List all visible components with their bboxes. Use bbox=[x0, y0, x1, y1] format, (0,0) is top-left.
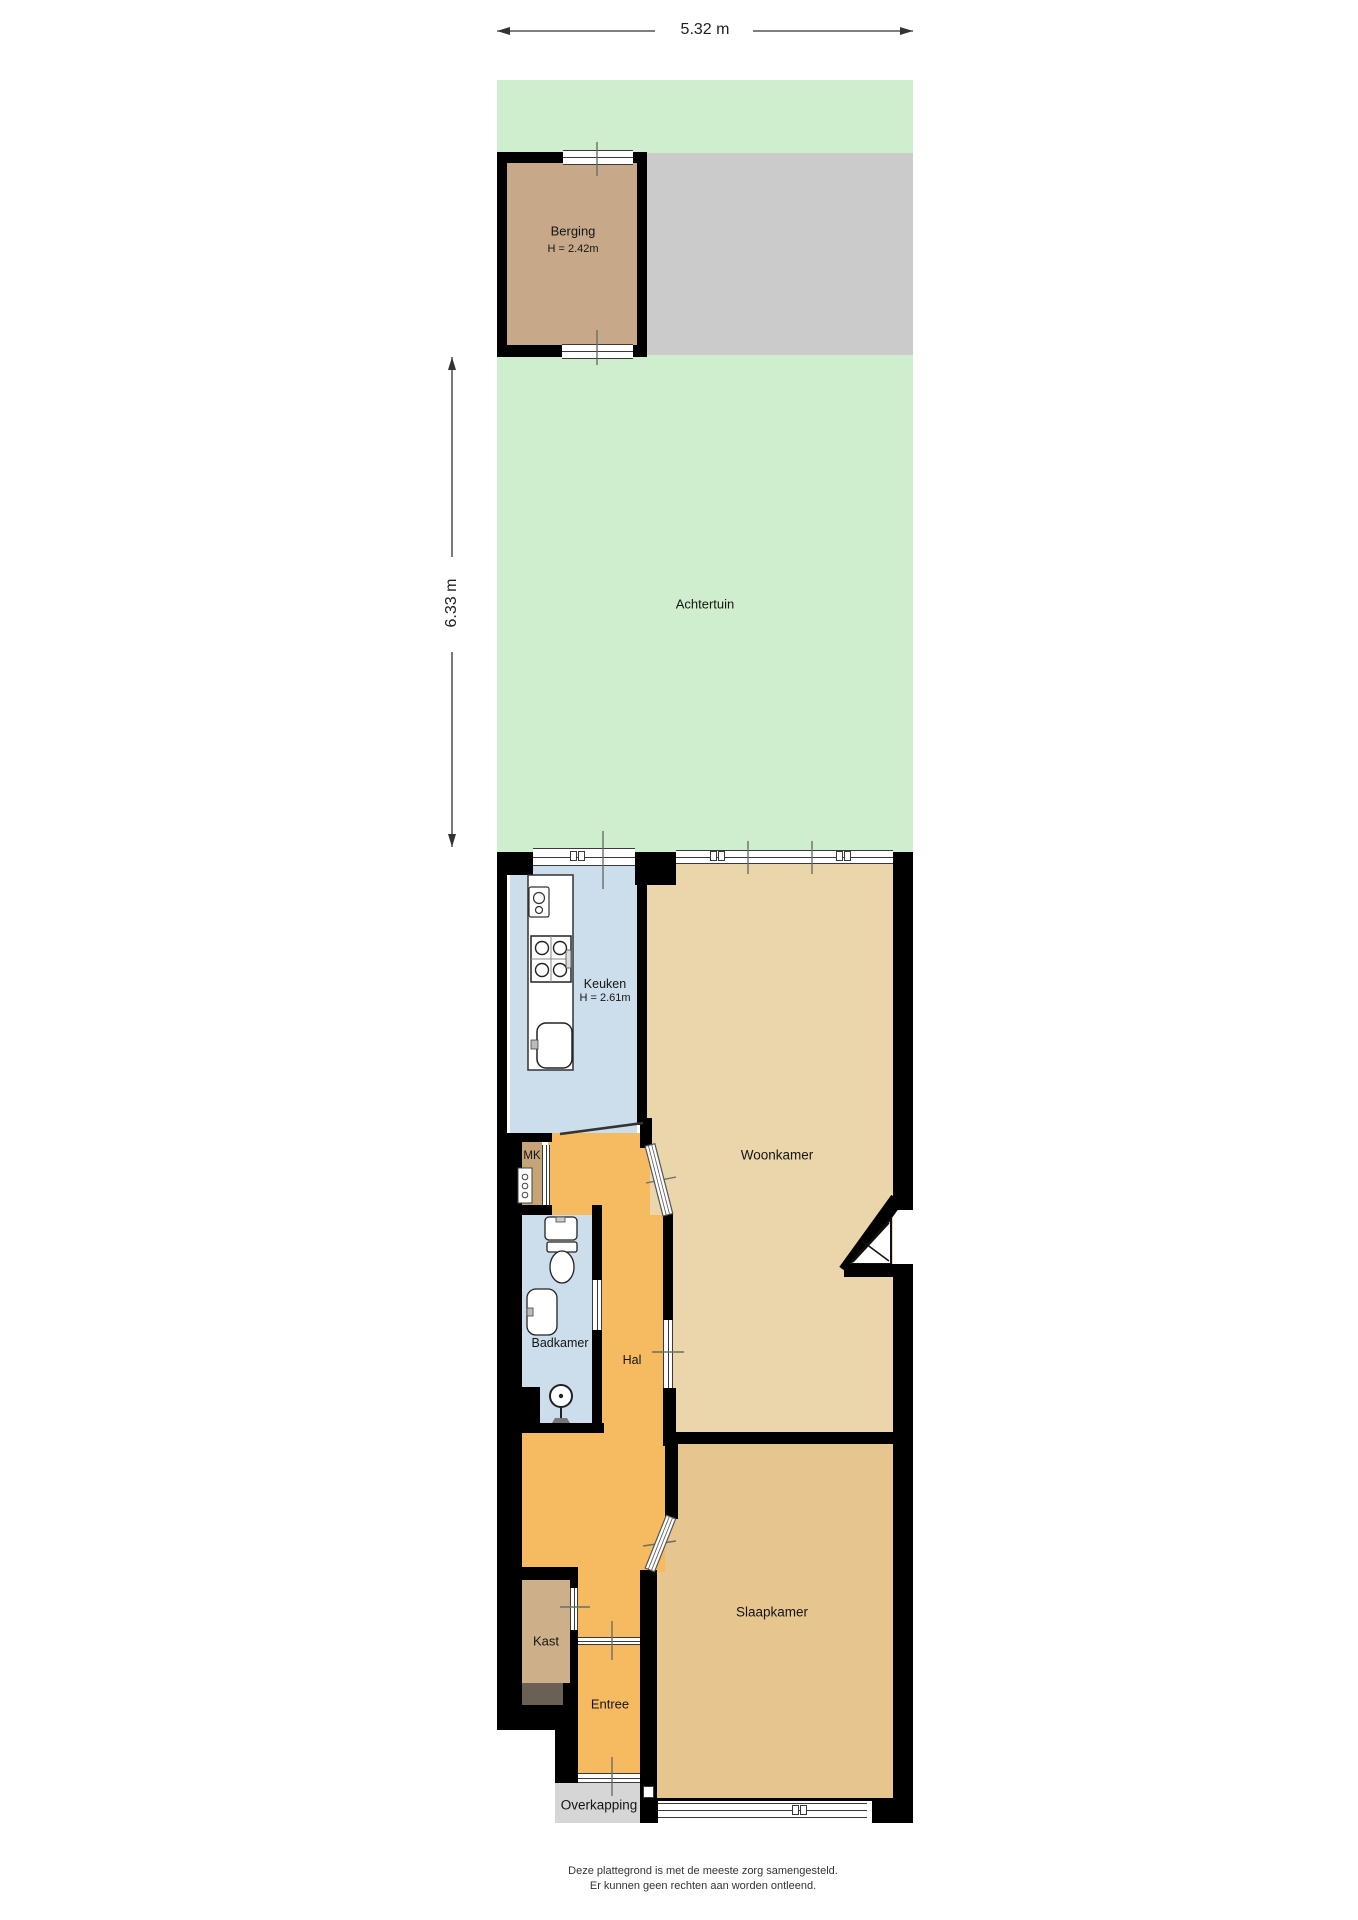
hal-floor-lower bbox=[522, 1423, 665, 1572]
wall-bottom-line bbox=[656, 1798, 874, 1801]
keuken-ceiling-label: H = 2.61m bbox=[579, 992, 630, 1004]
overkapping-label: Overkapping bbox=[561, 1798, 638, 1813]
slaapkamer-label: Slaapkamer bbox=[736, 1605, 808, 1620]
woonkamer-label: Woonkamer bbox=[741, 1148, 814, 1163]
disclaimer: Deze plattegrond is met de meeste zorg s… bbox=[568, 1864, 838, 1894]
wall-right-bottom bbox=[893, 1264, 913, 1800]
wall-woon-slaap-divider bbox=[663, 1432, 913, 1444]
hal-woonkamer-door bbox=[663, 1320, 673, 1388]
wall-left-b bbox=[497, 1133, 522, 1430]
meterkast-label: MK bbox=[523, 1150, 540, 1162]
wall-bad-right-a bbox=[592, 1205, 602, 1282]
entree-top-door bbox=[578, 1637, 640, 1645]
mullion bbox=[710, 851, 717, 861]
berging-ceiling-label: H = 2.42m bbox=[547, 243, 598, 255]
slaapkamer-window bbox=[658, 1803, 867, 1818]
arrow-up-icon bbox=[448, 357, 456, 370]
kast-label: Kast bbox=[533, 1634, 559, 1649]
hal-floor-upper bbox=[548, 1133, 650, 1215]
wall-mk-top bbox=[507, 1133, 552, 1142]
garden-top-strip bbox=[497, 80, 913, 153]
mullion bbox=[844, 851, 851, 861]
mullion bbox=[836, 851, 843, 861]
berging-door bbox=[562, 344, 633, 359]
height-dimension-label: 6.33 m bbox=[443, 579, 461, 628]
woonkamer-window bbox=[676, 850, 893, 864]
arrow-left-icon bbox=[497, 27, 510, 35]
wall-block-keuken-hal bbox=[640, 1118, 652, 1148]
meterkast-door bbox=[542, 1145, 550, 1205]
berging-window bbox=[563, 150, 633, 165]
paved-area bbox=[647, 153, 913, 355]
wall-bottomleft-jog-h bbox=[497, 1705, 573, 1730]
slaapkamer-floor bbox=[657, 1442, 893, 1798]
hal-floor-mid bbox=[602, 1215, 663, 1423]
badkamer-door bbox=[592, 1280, 602, 1330]
disclaimer-line1: Deze plattegrond is met de meeste zorg s… bbox=[568, 1864, 838, 1879]
wall-right-top bbox=[893, 852, 913, 1210]
entree-front-door bbox=[578, 1773, 640, 1783]
wall-slaap-left-top bbox=[665, 1442, 678, 1519]
wall-bottom-corner-left bbox=[640, 1798, 658, 1823]
width-dimension-label: 5.32 m bbox=[681, 21, 730, 39]
badkamer-label: Badkamer bbox=[532, 1336, 589, 1350]
kast-floor bbox=[522, 1580, 570, 1683]
wall-keuken-right bbox=[637, 862, 647, 1125]
wall-bottom-corner-right bbox=[872, 1798, 913, 1823]
hal-label: Hal bbox=[623, 1353, 642, 1367]
wall-entree-left bbox=[563, 1683, 578, 1733]
wall-hal-right-a bbox=[663, 1213, 673, 1322]
keuken-label: Keuken bbox=[584, 977, 626, 991]
wall-bad-notch bbox=[510, 1387, 540, 1423]
corridor-entree-floor bbox=[578, 1572, 640, 1775]
floorplan-canvas: 5.32 m 6.33 m Berging H = 2.42m Achtertu… bbox=[0, 0, 1358, 1920]
mullion bbox=[578, 851, 585, 861]
wall-left-a bbox=[497, 852, 507, 1140]
arrow-right-icon bbox=[900, 27, 913, 35]
achtertuin-label: Achtertuin bbox=[676, 597, 735, 612]
wall-kast-right-b bbox=[570, 1628, 578, 1685]
wall-mk-bottom bbox=[497, 1205, 552, 1215]
disclaimer-line2: Er kunnen geen rechten aan worden ontlee… bbox=[568, 1879, 838, 1894]
arrow-down-icon bbox=[448, 834, 456, 847]
side-window-notch bbox=[643, 1786, 654, 1798]
mullion bbox=[800, 1805, 807, 1815]
wall-bad-bottom bbox=[497, 1423, 604, 1433]
wall-bottomleft-jog-v bbox=[555, 1730, 578, 1783]
wall-kast-top bbox=[497, 1567, 578, 1580]
mullion bbox=[570, 851, 577, 861]
kast-door bbox=[570, 1588, 578, 1630]
mullion bbox=[718, 851, 725, 861]
wall-bad-right-b bbox=[592, 1328, 602, 1428]
doormat-patch bbox=[522, 1683, 563, 1705]
mullion bbox=[792, 1805, 799, 1815]
entree-label: Entree bbox=[591, 1697, 629, 1712]
berging-label: Berging bbox=[551, 224, 596, 239]
